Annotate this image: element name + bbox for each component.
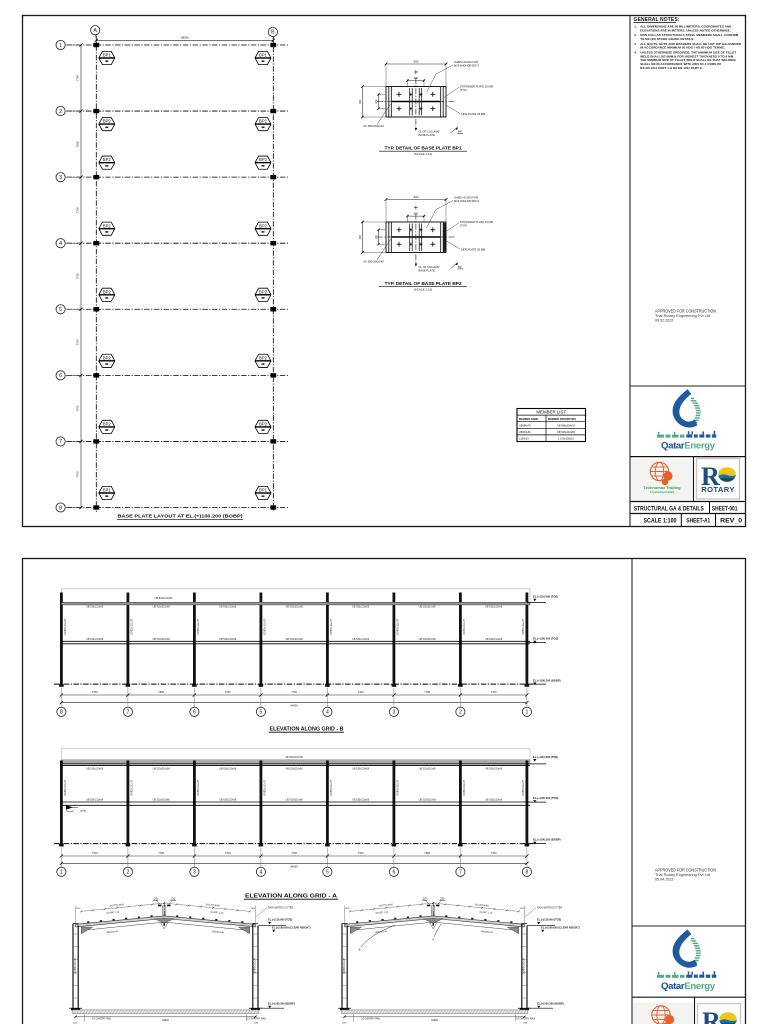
svg-text:7700: 7700 xyxy=(491,690,497,694)
svg-text:EL.(+)110.000 (TOS): EL.(+)110.000 (TOS) xyxy=(533,755,558,759)
svg-text:7700: 7700 xyxy=(158,851,164,855)
svg-text:7700: 7700 xyxy=(92,690,98,694)
svg-text:2: 2 xyxy=(126,870,129,876)
svg-text:UB 533x210x66: UB 533x210x66 xyxy=(352,606,370,609)
svg-text:RAIN WATER GUTTER: RAIN WATER GUTTER xyxy=(268,907,294,910)
svg-text:ROTARY: ROTARY xyxy=(701,485,735,494)
svg-text:UC450x191x78: UC450x191x78 xyxy=(264,779,266,796)
svg-text:7800: 7800 xyxy=(76,141,80,148)
svg-text:B: B xyxy=(271,30,275,36)
svg-text:1.0 GANTRY RAIL: 1.0 GANTRY RAIL xyxy=(246,1017,267,1020)
svg-text:UC 350x250x140: UC 350x250x140 xyxy=(363,259,384,263)
svg-text:UC450x191x78: UC450x191x78 xyxy=(198,779,200,796)
svg-text:UB 533x210x66: UB 533x210x66 xyxy=(86,799,104,802)
svg-text:UB 533x210x66: UB 533x210x66 xyxy=(153,799,171,802)
svg-text:6: 6 xyxy=(392,870,395,876)
svg-text:UB686x76: UB686x76 xyxy=(519,425,531,428)
svg-text:BP2: BP2 xyxy=(259,157,268,162)
svg-text:Thai Rotary Engineering Pvt Lt: Thai Rotary Engineering Pvt Ltd xyxy=(655,313,710,318)
svg-text:BP2: BP2 xyxy=(103,157,112,162)
svg-text:235: 235 xyxy=(154,897,159,900)
svg-text:7700: 7700 xyxy=(76,405,80,412)
svg-text:1: 1 xyxy=(60,870,63,876)
svg-text:TYP. DETAIL OF BASE PLATE BP2: TYP. DETAIL OF BASE PLATE BP2 xyxy=(385,281,462,287)
svg-text:EL.(+)109.000 (CLEAR HEIGHT): EL.(+)109.000 (CLEAR HEIGHT) xyxy=(541,926,580,930)
svg-text:5: 5 xyxy=(259,710,262,716)
svg-text:ELEVATION ALONG GRID - B: ELEVATION ALONG GRID - B xyxy=(270,726,344,732)
svg-text:300: 300 xyxy=(359,235,362,240)
svg-text:STIFFENER PLATE 10 MM: STIFFENER PLATE 10 MM xyxy=(460,85,494,89)
svg-text:EL.(+)100.200 (BOBP): EL.(+)100.200 (BOBP) xyxy=(268,1002,295,1006)
svg-text:UB 533x210x66: UB 533x210x66 xyxy=(219,799,237,802)
svg-text:5: 5 xyxy=(326,870,329,876)
svg-text:6: 6 xyxy=(59,373,62,379)
svg-text:Thai Rotary Engineering Pvt Lt: Thai Rotary Engineering Pvt Ltd xyxy=(655,872,710,877)
svg-text:UB 533x210x66: UB 533x210x66 xyxy=(286,638,304,641)
svg-text:7700: 7700 xyxy=(491,851,497,855)
svg-text:4xØ20 HOLES FOR: 4xØ20 HOLES FOR xyxy=(454,196,478,200)
svg-text:BASE PLATE LAYOUT AT EL.(+)100: BASE PLATE LAYOUT AT EL.(+)100.200 (BOBP… xyxy=(118,514,243,520)
svg-text:7700: 7700 xyxy=(291,851,297,855)
svg-text:BP2: BP2 xyxy=(103,223,112,228)
svg-text:18000: 18000 xyxy=(431,1019,439,1022)
svg-text:7700: 7700 xyxy=(291,690,297,694)
svg-text:SCALE 1:100: SCALE 1:100 xyxy=(644,517,677,524)
svg-text:STIFFENER PLATE 10 MM: STIFFENER PLATE 10 MM xyxy=(460,220,494,224)
svg-text:4: 4 xyxy=(259,870,262,876)
svg-text:7700: 7700 xyxy=(76,74,80,81)
svg-text:UB 686x254x76: UB 686x254x76 xyxy=(557,425,575,428)
svg-text:UB 533x210x66: UB 533x210x66 xyxy=(485,606,503,609)
svg-text:5: 5 xyxy=(59,307,62,313)
svg-text:7700: 7700 xyxy=(76,207,80,214)
svg-text:UB 533x210x66: UB 533x210x66 xyxy=(485,799,503,802)
svg-text:7: 7 xyxy=(459,870,462,876)
svg-text:SIDE PLATE 25 MM: SIDE PLATE 25 MM xyxy=(461,247,486,251)
svg-text:BP1: BP1 xyxy=(259,53,268,58)
svg-text:05.04.2022: 05.04.2022 xyxy=(655,878,673,882)
svg-text:UB 533x210x66: UB 533x210x66 xyxy=(419,799,437,802)
svg-text:CL OF COLUMN/: CL OF COLUMN/ xyxy=(419,130,440,134)
svg-text:EL.(+)110.000 (TOS): EL.(+)110.000 (TOS) xyxy=(533,595,558,599)
svg-text:Qatar: Qatar xyxy=(661,981,685,992)
svg-text:IN ACCORDANCE MINIMUM 85 HDG /: IN ACCORDANCE MINIMUM 85 HDG / HD 85 HDG… xyxy=(640,46,725,50)
svg-text:1.0 GANTRY RAIL: 1.0 GANTRY RAIL xyxy=(361,1017,382,1020)
svg-text:7700: 7700 xyxy=(76,339,80,346)
svg-text:UB 533x210x66: UB 533x210x66 xyxy=(155,597,173,600)
svg-text:UB 533x210x66: UB 533x210x66 xyxy=(219,768,237,771)
svg-text:STRUCTURAL GA & DETAILS: STRUCTURAL GA & DETAILS xyxy=(634,505,704,512)
svg-text:UC450x191x78: UC450x191x78 xyxy=(523,779,525,796)
svg-text:M24 ANCHOR BOLT: M24 ANCHOR BOLT xyxy=(454,64,479,68)
svg-text:3: 3 xyxy=(392,710,395,716)
svg-text:300: 300 xyxy=(359,99,362,104)
svg-text:8: 8 xyxy=(60,710,63,716)
svg-text:7800: 7800 xyxy=(424,851,430,855)
svg-text:UB 533x210x66: UB 533x210x66 xyxy=(86,638,104,641)
svg-text:1: 1 xyxy=(525,710,528,716)
svg-text:UB 533x210x66: UB 533x210x66 xyxy=(419,606,437,609)
svg-text:BP2: BP2 xyxy=(103,119,112,124)
svg-text:L100x10: L100x10 xyxy=(519,438,529,441)
svg-text:TO BE (IN) STOOD GRADE DETAILS: TO BE (IN) STOOD GRADE DETAILS. xyxy=(640,37,694,41)
svg-text:7700: 7700 xyxy=(424,690,430,694)
svg-text:UC450x191x78: UC450x191x78 xyxy=(397,618,399,635)
svg-text:54000: 54000 xyxy=(290,864,298,868)
svg-text:UB533x66: UB533x66 xyxy=(519,431,531,434)
svg-text:BP2: BP2 xyxy=(103,355,112,360)
svg-text:7700: 7700 xyxy=(225,851,231,855)
svg-text:500: 500 xyxy=(414,60,419,64)
svg-text:BP: BP xyxy=(458,130,462,134)
svg-text:UB 533x210x66: UB 533x210x66 xyxy=(286,799,304,802)
svg-text:Technomax Trading: Technomax Trading xyxy=(644,486,682,490)
svg-text:UB 533x210x66: UB 533x210x66 xyxy=(219,638,237,641)
svg-text:EL.(+)100.200 (BOBP): EL.(+)100.200 (BOBP) xyxy=(533,838,561,842)
svg-text:BP2: BP2 xyxy=(103,289,112,294)
svg-text:EL.(+)110.000 (TOS): EL.(+)110.000 (TOS) xyxy=(268,918,292,922)
svg-text:18000: 18000 xyxy=(180,35,189,39)
svg-text:235: 235 xyxy=(423,897,428,900)
svg-text:EL.(+)105.200 (TOS): EL.(+)105.200 (TOS) xyxy=(533,637,558,641)
svg-text:4.: 4. xyxy=(634,51,637,55)
svg-text:230: 230 xyxy=(440,897,445,900)
svg-text:09.02.2022: 09.02.2022 xyxy=(655,319,673,323)
svg-text:EL.(+)100.200 (BOBP): EL.(+)100.200 (BOBP) xyxy=(537,1002,564,1006)
svg-text:UC450x191x78: UC450x191x78 xyxy=(464,618,466,635)
svg-text:2.: 2. xyxy=(634,33,637,37)
svg-text:TYP. DETAIL OF BASE PLATE BP1: TYP. DETAIL OF BASE PLATE BP1 xyxy=(385,145,462,151)
svg-text:UB 533x210x66: UB 533x210x66 xyxy=(485,638,503,641)
svg-text:BP1: BP1 xyxy=(259,488,268,493)
svg-text:L 100x100x10: L 100x100x10 xyxy=(558,438,574,441)
svg-text:BS EN 1011 PART 1 & BS EN 1011: BS EN 1011 PART 1 & BS EN 1011 PART 2. xyxy=(640,66,702,70)
svg-text:500: 500 xyxy=(414,195,419,199)
svg-text:UB 533x210x66: UB 533x210x66 xyxy=(352,638,370,641)
svg-text:7700: 7700 xyxy=(76,471,80,478)
svg-text:UC450x191x78: UC450x191x78 xyxy=(264,618,266,635)
svg-text:7700: 7700 xyxy=(76,273,80,280)
svg-text:UC 350x350x140: UC 350x350x140 xyxy=(363,124,384,128)
svg-text:1: 1 xyxy=(59,43,62,49)
svg-text:(TYP): (TYP) xyxy=(80,811,86,813)
svg-text:UB 533x210x66: UB 533x210x66 xyxy=(153,606,171,609)
svg-text:UC450x191x78: UC450x191x78 xyxy=(198,618,200,635)
svg-text:UB 533x210x66: UB 533x210x66 xyxy=(557,431,575,434)
svg-text:M24 ANCHOR BOLT: M24 ANCHOR BOLT xyxy=(454,199,479,203)
svg-text:UC450x191x78: UC450x191x78 xyxy=(75,957,77,974)
svg-text:EL.(+)100.200 (BOBP): EL.(+)100.200 (BOBP) xyxy=(533,678,561,682)
svg-text:SHEET-A1: SHEET-A1 xyxy=(686,517,710,524)
svg-text:7700: 7700 xyxy=(358,851,364,855)
svg-text:UC450x191x78: UC450x191x78 xyxy=(331,779,333,796)
svg-text:UB 533x210x66: UB 533x210x66 xyxy=(219,606,237,609)
svg-text:BP1: BP1 xyxy=(103,488,112,493)
svg-text:BP1: BP1 xyxy=(103,53,112,58)
svg-text:4xØ20 HOLES FOR: 4xØ20 HOLES FOR xyxy=(454,60,478,64)
svg-text:8: 8 xyxy=(525,870,528,876)
svg-text:ELEVATION ALONG GRID - A: ELEVATION ALONG GRID - A xyxy=(245,893,337,899)
svg-text:UC450x191x78: UC450x191x78 xyxy=(397,779,399,796)
svg-text:7800: 7800 xyxy=(158,690,164,694)
svg-text:1.: 1. xyxy=(634,24,637,28)
svg-text:MEMBER NAME: MEMBER NAME xyxy=(519,418,538,421)
svg-text:1.0 GANTRY RAIL: 1.0 GANTRY RAIL xyxy=(515,1017,536,1020)
svg-text:UB 533x210x66: UB 533x210x66 xyxy=(352,768,370,771)
svg-text:2: 2 xyxy=(59,109,62,115)
svg-text:(TYP): (TYP) xyxy=(460,224,467,228)
svg-text:UB 533x210x66: UB 533x210x66 xyxy=(286,606,304,609)
svg-text:B: B xyxy=(359,948,361,952)
svg-text:ELEVATIONS ARE IN METERS, UNLE: ELEVATIONS ARE IN METERS, UNLESS NOTED O… xyxy=(640,28,730,32)
svg-text:(SCALE 1:10): (SCALE 1:10) xyxy=(414,152,433,156)
svg-text:7: 7 xyxy=(59,439,62,445)
svg-text:100: 100 xyxy=(375,99,378,104)
svg-text:UC450x191x78: UC450x191x78 xyxy=(255,957,257,974)
svg-text:UB 533x210x66: UB 533x210x66 xyxy=(485,768,503,771)
svg-text:3.: 3. xyxy=(634,42,637,46)
svg-text:BP2: BP2 xyxy=(259,223,268,228)
svg-text:8: 8 xyxy=(59,505,62,511)
svg-text:SIDE PLATE 25 MM: SIDE PLATE 25 MM xyxy=(461,112,486,116)
svg-text:UB 533x210x66: UB 533x210x66 xyxy=(419,768,437,771)
svg-text:UB 533x210x66: UB 533x210x66 xyxy=(419,638,437,641)
svg-text:Energy: Energy xyxy=(684,441,715,452)
svg-text:UB 533x210x66: UB 533x210x66 xyxy=(86,768,104,771)
svg-text:BASE PLATE: BASE PLATE xyxy=(419,268,435,272)
svg-text:UC450x191x78: UC450x191x78 xyxy=(131,779,133,796)
svg-text:6: 6 xyxy=(193,710,196,716)
svg-text:BP2: BP2 xyxy=(259,119,268,124)
svg-text:18000: 18000 xyxy=(162,1019,170,1022)
svg-text:UC450x191x78: UC450x191x78 xyxy=(524,957,526,974)
svg-text:RAIN WATER GUTTER: RAIN WATER GUTTER xyxy=(537,907,563,910)
svg-text:MEMBER LIST: MEMBER LIST xyxy=(536,410,566,415)
svg-text:UB 533x210x66: UB 533x210x66 xyxy=(352,799,370,802)
svg-text:UC450x191x78: UC450x191x78 xyxy=(344,957,346,974)
svg-text:A Contracting Company: A Contracting Company xyxy=(650,491,675,494)
svg-text:BP2: BP2 xyxy=(259,355,268,360)
svg-text:BASE PLATE: BASE PLATE xyxy=(419,133,435,137)
svg-text:3: 3 xyxy=(193,870,196,876)
svg-text:UC450x191x78: UC450x191x78 xyxy=(464,779,466,796)
svg-text:EL.(+)109.000 (CLEAR HEIGHT): EL.(+)109.000 (CLEAR HEIGHT) xyxy=(272,926,311,930)
svg-text:4: 4 xyxy=(59,241,62,247)
svg-text:Energy: Energy xyxy=(684,981,715,992)
svg-text:UB 533x210x66: UB 533x210x66 xyxy=(153,638,171,641)
svg-text:UB 533x210x66: UB 533x210x66 xyxy=(285,756,303,759)
svg-text:UC450x191x78: UC450x191x78 xyxy=(65,779,67,796)
svg-text:7700: 7700 xyxy=(358,690,364,694)
svg-text:1.0 GANTRY RAIL: 1.0 GANTRY RAIL xyxy=(92,1017,113,1020)
svg-text:UB 533x210x66: UB 533x210x66 xyxy=(286,768,304,771)
svg-text:3: 3 xyxy=(59,175,62,181)
svg-text:CL OF COLUMN/: CL OF COLUMN/ xyxy=(419,265,440,269)
svg-text:REV_0: REV_0 xyxy=(720,517,743,524)
svg-text:SHEET-001: SHEET-001 xyxy=(712,505,738,512)
svg-text:(TYP): (TYP) xyxy=(460,88,467,92)
svg-text:EL.(+)110.000 (TOS): EL.(+)110.000 (TOS) xyxy=(537,918,561,922)
svg-text:UC450x191x78: UC450x191x78 xyxy=(331,618,333,635)
svg-text:7: 7 xyxy=(126,710,129,716)
svg-text:BP2: BP2 xyxy=(259,289,268,294)
svg-text:7700: 7700 xyxy=(92,851,98,855)
svg-text:EL.(+)105.200 (TOS): EL.(+)105.200 (TOS) xyxy=(533,796,558,800)
svg-text:UB 533x210x66: UB 533x210x66 xyxy=(153,768,171,771)
svg-text:(SCALE 1:10): (SCALE 1:10) xyxy=(414,288,433,292)
svg-text:UC450x191x78: UC450x191x78 xyxy=(65,618,67,635)
svg-text:R: R xyxy=(702,1007,721,1024)
svg-text:BP2: BP2 xyxy=(259,422,268,427)
svg-text:2: 2 xyxy=(459,710,462,716)
svg-text:MEMBER PROPERTIES: MEMBER PROPERTIES xyxy=(548,418,576,421)
svg-text:A: A xyxy=(432,938,434,942)
svg-text:UB 533x210x66: UB 533x210x66 xyxy=(86,606,104,609)
svg-text:7700: 7700 xyxy=(225,690,231,694)
svg-text:A: A xyxy=(93,28,97,34)
svg-text:230: 230 xyxy=(171,897,176,900)
svg-text:54000: 54000 xyxy=(290,704,298,708)
svg-text:UC450x191x78: UC450x191x78 xyxy=(523,618,525,635)
svg-text:BP: BP xyxy=(458,265,462,269)
svg-text:BP2: BP2 xyxy=(103,422,112,427)
svg-text:UC450x191x78: UC450x191x78 xyxy=(131,618,133,635)
svg-text:4: 4 xyxy=(326,710,329,716)
svg-text:100: 100 xyxy=(375,235,378,240)
svg-text:Qatar: Qatar xyxy=(661,441,685,452)
